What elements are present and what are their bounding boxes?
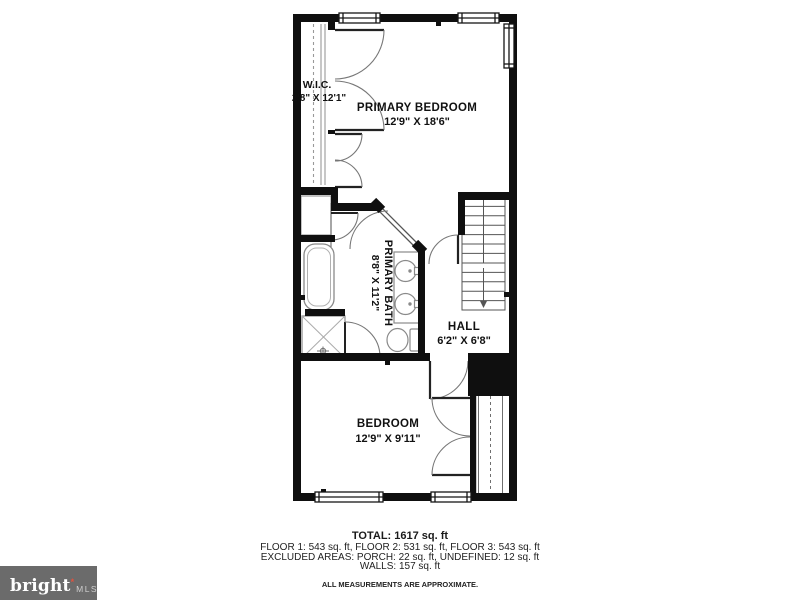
wic-door-lower bbox=[335, 134, 362, 187]
porch-chase-strip bbox=[476, 393, 504, 493]
bedroom-dim: 12'9" X 9'11" bbox=[355, 433, 420, 445]
logo-suffix-text: MLS bbox=[76, 584, 98, 594]
window bbox=[339, 13, 380, 23]
shower bbox=[302, 316, 345, 358]
logo-brand-text: bright bbox=[10, 579, 71, 594]
primary-bath-label: PRIMARY BATH bbox=[382, 240, 394, 327]
wic-dim: 2'8" X 12'1" bbox=[292, 93, 347, 104]
wic-door-upper bbox=[335, 30, 384, 130]
primary-bath-dim: 8'8" X 11'2" bbox=[369, 255, 381, 311]
bedroom-closet-doors bbox=[432, 398, 470, 475]
walls-area: WALLS: 157 sq. ft bbox=[0, 562, 800, 572]
bathtub bbox=[304, 244, 334, 310]
logo-asterisk-icon: * bbox=[71, 577, 75, 587]
floorplan-drawing: PRIMARY BEDROOM 12'9" X 18'6" W.I.C. 2'8… bbox=[0, 0, 800, 600]
toilet bbox=[387, 329, 419, 352]
measurement-disclaimer: ALL MEASUREMENTS ARE APPROXIMATE. bbox=[0, 580, 800, 589]
window bbox=[504, 24, 514, 68]
primary-bedroom-label: PRIMARY BEDROOM bbox=[357, 102, 477, 114]
window bbox=[458, 13, 499, 23]
walk-in-closet bbox=[314, 24, 326, 185]
window bbox=[431, 492, 471, 502]
area-summary: TOTAL: 1617 sq. ft FLOOR 1: 543 sq. ft, … bbox=[0, 530, 800, 589]
hall-label: HALL bbox=[448, 321, 480, 333]
floorplan-page: { "plan": { "rooms": [ {"name": "PRIMARY… bbox=[0, 0, 800, 600]
bright-mls-logo: bright * MLS bbox=[0, 566, 97, 600]
double-vanity bbox=[394, 252, 420, 323]
bedroom-door bbox=[430, 361, 468, 399]
primary-bedroom-dim: 12'9" X 18'6" bbox=[384, 116, 450, 128]
hall-stair-door bbox=[429, 235, 458, 264]
wic-label: W.I.C. bbox=[303, 79, 332, 91]
linen-closet-door bbox=[331, 213, 358, 240]
bedroom-label: BEDROOM bbox=[357, 418, 419, 430]
hall-dim: 6'2" X 6'8" bbox=[437, 335, 491, 347]
shower-door bbox=[345, 322, 380, 357]
floorplan-stage: PRIMARY BEDROOM 12'9" X 18'6" W.I.C. 2'8… bbox=[0, 0, 800, 600]
window bbox=[315, 492, 383, 502]
staircase bbox=[462, 197, 505, 310]
